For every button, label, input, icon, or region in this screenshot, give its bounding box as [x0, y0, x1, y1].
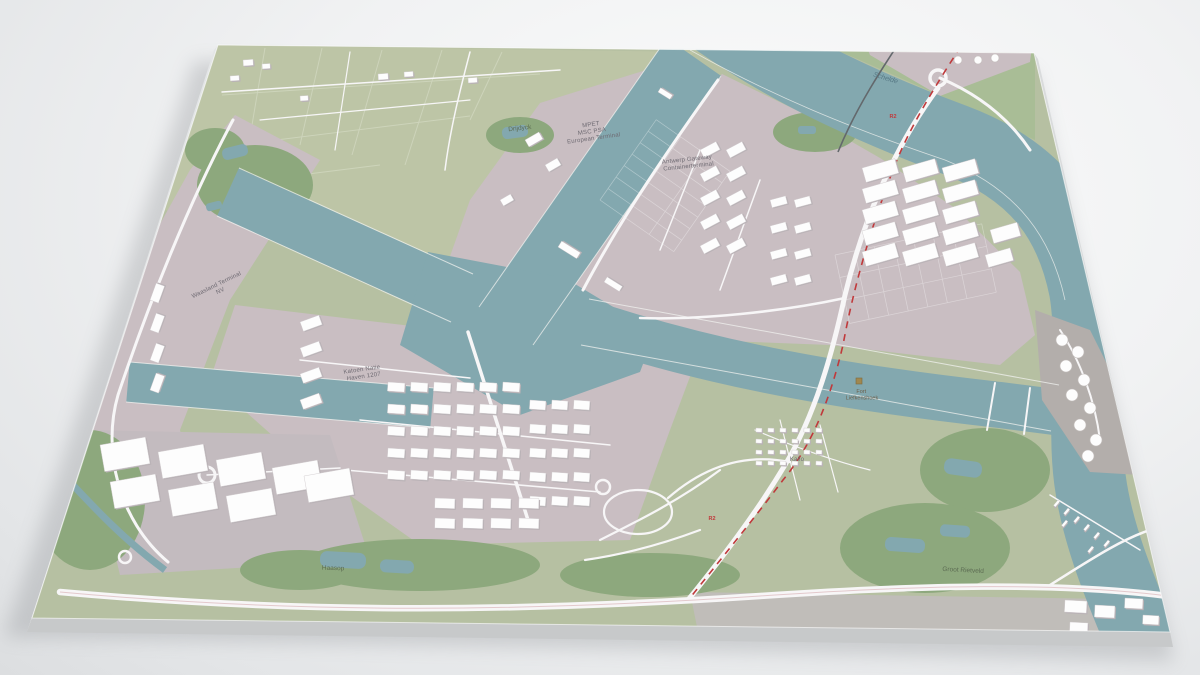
label-haasop: Haasop [322, 565, 345, 573]
warehouse [456, 470, 475, 481]
building [1124, 598, 1144, 610]
storage-tank [986, 41, 994, 49]
warehouse [551, 472, 569, 483]
verrebroekdok [128, 382, 432, 408]
storage-tank [1001, 28, 1009, 36]
label-kallo: Kallo [790, 457, 805, 463]
warehouse [387, 470, 406, 481]
warehouse [433, 404, 452, 415]
storage-tank [1082, 450, 1094, 462]
warehouse [435, 498, 457, 510]
warehouse [479, 426, 498, 437]
storage-tank [1060, 360, 1072, 372]
warehouse [456, 382, 475, 393]
storage-tank [971, 24, 979, 32]
warehouse [479, 404, 498, 415]
warehouse [491, 518, 513, 530]
storage-tank [1074, 419, 1086, 431]
farm [243, 59, 255, 67]
warehouse [410, 404, 429, 415]
warehouse [502, 426, 521, 437]
warehouse [456, 426, 475, 437]
warehouse [529, 400, 547, 411]
warehouse [919, 36, 936, 46]
warehouse [479, 382, 498, 393]
storage-tank [991, 54, 999, 62]
building [1142, 615, 1160, 626]
warehouse [410, 448, 429, 459]
warehouse [573, 400, 591, 411]
warehouse [941, 22, 958, 32]
warehouse [551, 424, 569, 435]
warehouse [387, 426, 406, 437]
warehouse [502, 404, 521, 415]
fort-icon [856, 378, 862, 384]
warehouse [529, 472, 547, 483]
warehouse [387, 382, 406, 393]
warehouse [491, 498, 513, 510]
warehouse [456, 404, 475, 415]
farm [378, 73, 390, 81]
warehouse [573, 424, 591, 435]
warehouse [551, 496, 569, 507]
warehouse [519, 518, 541, 530]
farm [230, 75, 241, 82]
warehouse [433, 470, 452, 481]
warehouse [875, 36, 892, 46]
farm [468, 77, 479, 84]
warehouse [410, 426, 429, 437]
warehouse [502, 470, 521, 481]
warehouse [463, 518, 485, 530]
warehouse [573, 448, 591, 459]
warehouse [897, 22, 914, 32]
warehouse [433, 426, 452, 437]
map-slab: MPET MSC PSA European Terminal Antwerp G… [30, 14, 1170, 655]
warehouse [941, 36, 958, 46]
warehouse [529, 424, 547, 435]
storage-tank [1078, 374, 1090, 386]
storage-tank [1084, 402, 1096, 414]
warehouse [502, 448, 521, 459]
warehouse [519, 498, 541, 510]
warehouse [435, 518, 457, 530]
warehouse [875, 22, 892, 32]
warehouse [456, 448, 475, 459]
warehouse [387, 448, 406, 459]
warehouse [410, 382, 429, 393]
warehouse [529, 448, 547, 459]
farm [404, 71, 415, 78]
storage-tank [941, 26, 949, 34]
storage-tank [956, 38, 964, 46]
building [1064, 600, 1088, 614]
warehouse [387, 404, 406, 415]
warehouse [502, 382, 521, 393]
warehouse [433, 382, 452, 393]
warehouse [463, 498, 485, 510]
storage-tank [1090, 434, 1102, 446]
warehouse [433, 448, 452, 459]
storage-tank [1072, 346, 1084, 358]
warehouse [573, 496, 591, 507]
warehouse [479, 448, 498, 459]
warehouse [573, 472, 591, 483]
warehouse [551, 400, 569, 411]
warehouse [410, 470, 429, 481]
warehouse [479, 470, 498, 481]
label-r2-north: R2 [889, 114, 896, 120]
building [1094, 605, 1116, 619]
label-r2-south: R2 [708, 516, 715, 522]
port-map-3d-render: MPET MSC PSA European Terminal Antwerp G… [0, 0, 1200, 675]
storage-tank [1066, 389, 1078, 401]
storage-tank [954, 56, 962, 64]
storage-tank [1056, 334, 1068, 346]
warehouse [897, 36, 914, 46]
warehouse [919, 22, 936, 32]
storage-tank [974, 56, 982, 64]
warehouse [551, 448, 569, 459]
